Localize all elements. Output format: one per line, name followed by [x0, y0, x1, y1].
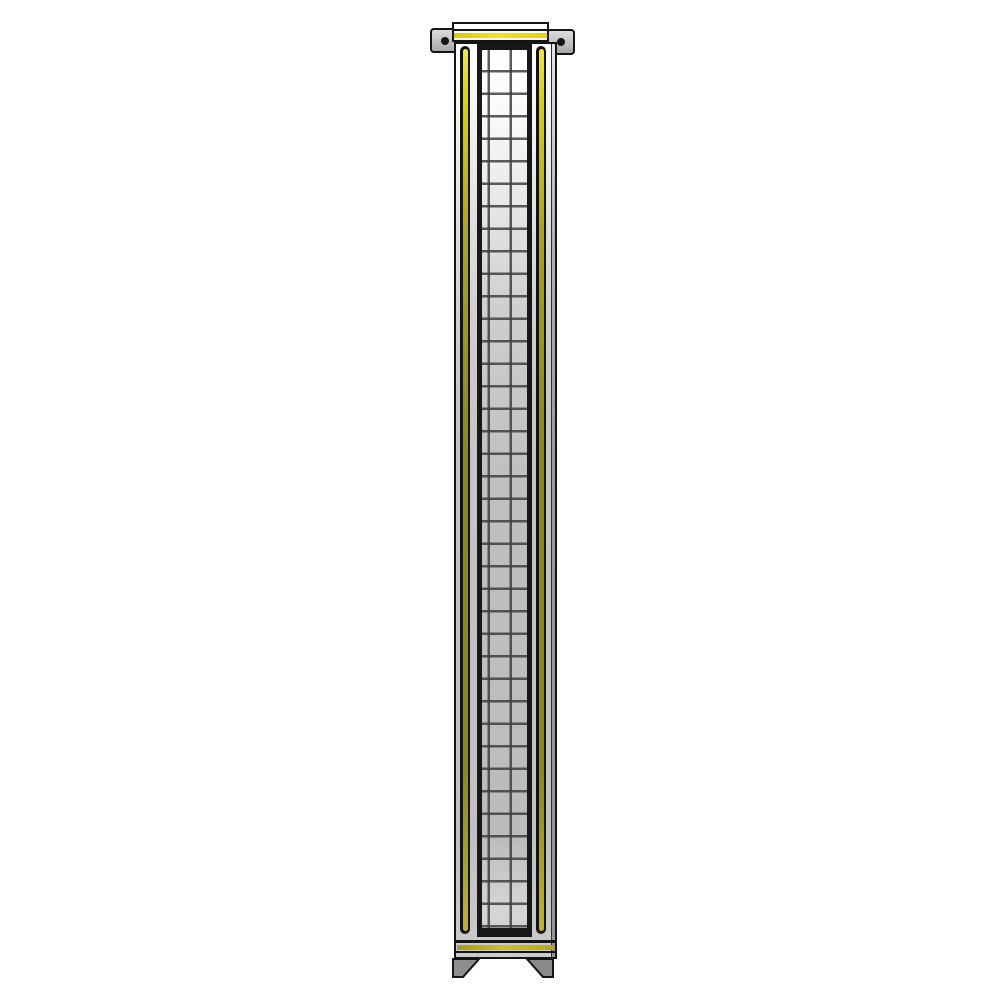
top-cap	[452, 22, 549, 42]
bolt-hole-left	[441, 37, 449, 45]
accent-stripe-right	[539, 49, 544, 931]
panel-frame	[454, 42, 557, 959]
base-rail-top-line	[456, 940, 555, 943]
panel-side-shade	[551, 44, 555, 957]
cap-accent-stripe	[454, 33, 547, 38]
product-render-canvas	[0, 0, 1000, 1000]
foot-right	[527, 959, 553, 977]
wire-mesh-grid	[482, 50, 527, 928]
base-accent-stripe	[457, 945, 554, 950]
mesh-window	[477, 44, 532, 937]
cap-trim-line	[454, 29, 547, 31]
base-rail-bottom-line	[456, 951, 555, 953]
bolt-hole-right	[557, 38, 565, 46]
foot-left	[453, 959, 479, 977]
accent-stripe-left	[463, 49, 468, 931]
feet-group	[446, 955, 564, 983]
frame-groove-left	[460, 46, 470, 934]
frame-groove-right	[536, 46, 546, 934]
